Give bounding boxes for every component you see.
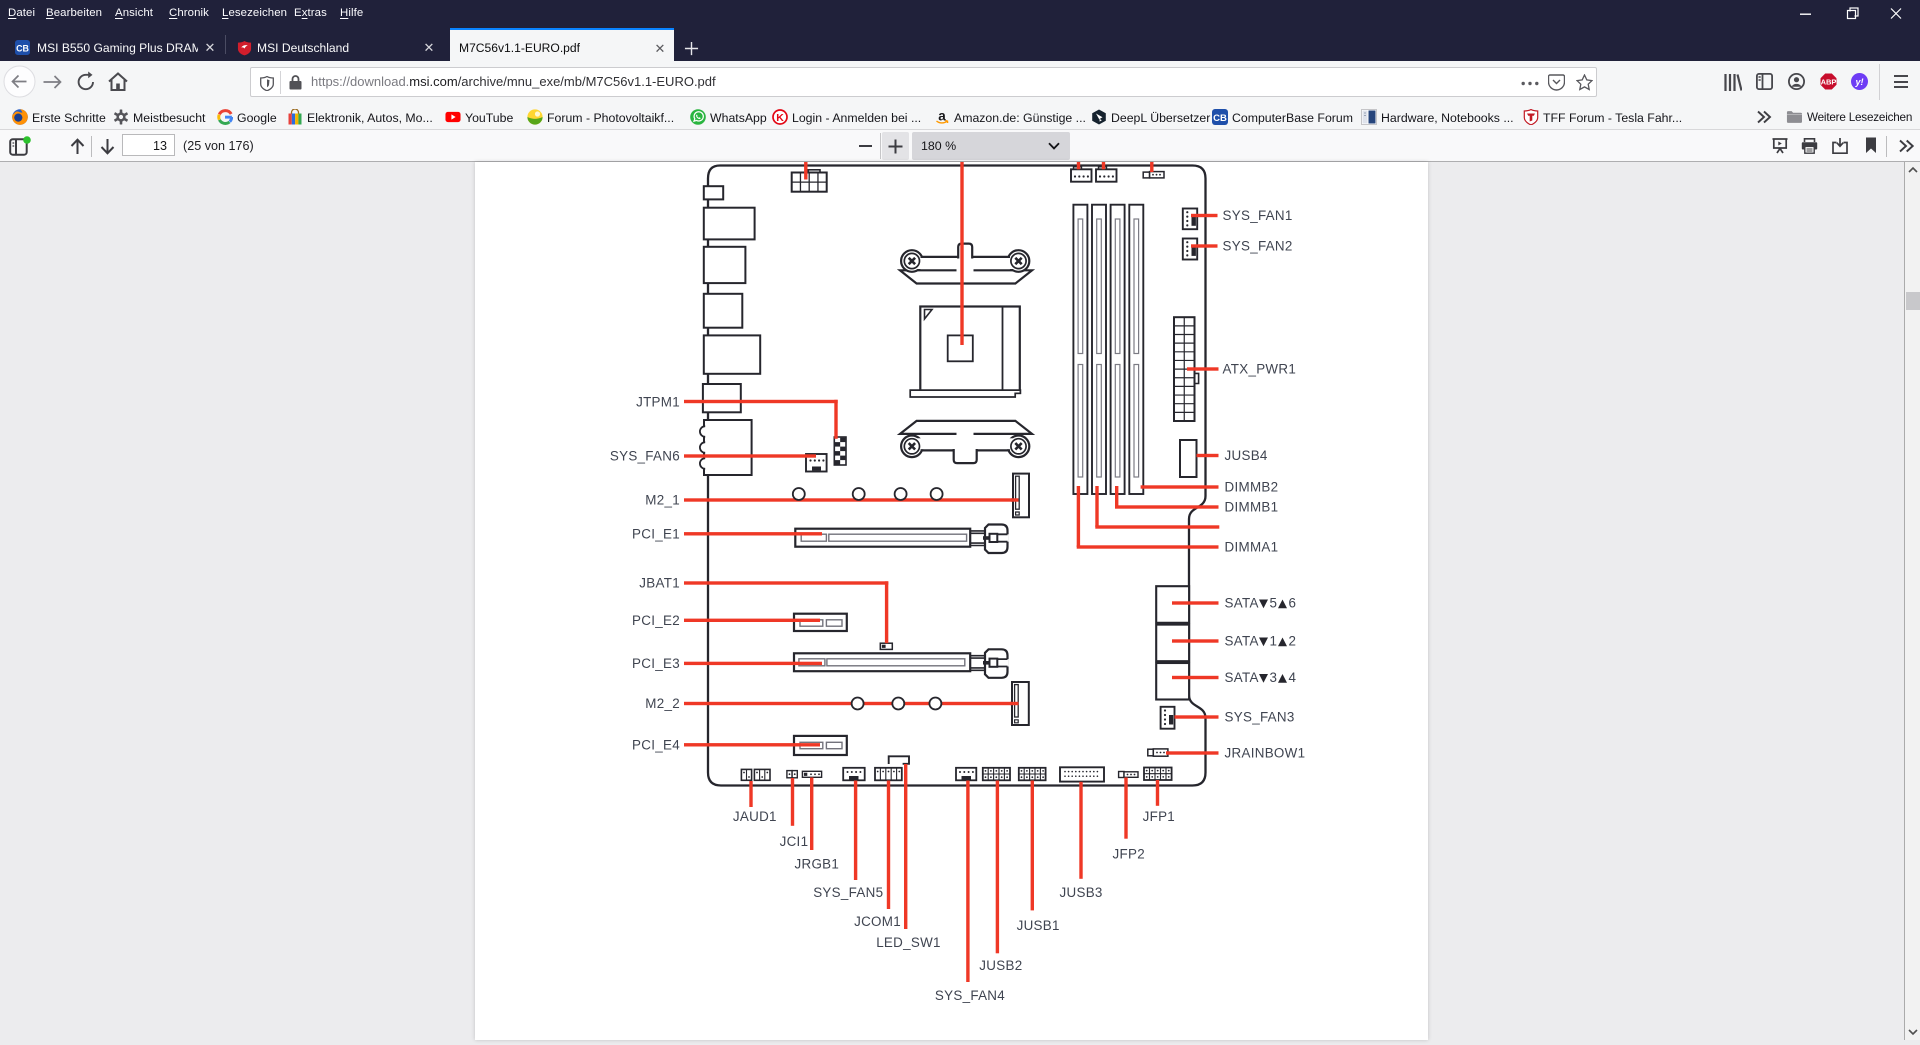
svg-text:2: 2	[1289, 634, 1297, 649]
svg-text:DIMMB1: DIMMB1	[1225, 500, 1279, 515]
svg-text:JUSB3: JUSB3	[1060, 885, 1103, 900]
svg-text:SYS_FAN4: SYS_FAN4	[935, 988, 1005, 1003]
svg-text:JCI1: JCI1	[780, 834, 809, 849]
svg-text:PCI_E4: PCI_E4	[632, 738, 680, 753]
svg-text:JRGB1: JRGB1	[795, 857, 840, 872]
svg-text:JTPM1: JTPM1	[636, 394, 680, 409]
svg-text:a: a	[938, 109, 946, 124]
svg-text:ATX_PWR1: ATX_PWR1	[1223, 362, 1297, 377]
svg-text:JBAT1: JBAT1	[639, 576, 680, 591]
svg-text:JUSB4: JUSB4	[1225, 448, 1268, 463]
svg-text:3: 3	[1270, 670, 1278, 685]
svg-text:JFP1: JFP1	[1143, 809, 1175, 824]
svg-text:JFP2: JFP2	[1113, 847, 1145, 862]
svg-text:SATA: SATA	[1225, 596, 1259, 611]
svg-text:SYS_FAN1: SYS_FAN1	[1223, 208, 1293, 223]
svg-text:1: 1	[1270, 634, 1278, 649]
svg-text:4: 4	[1289, 670, 1297, 685]
svg-text:JAUD1: JAUD1	[733, 809, 777, 824]
svg-text:JCOM1: JCOM1	[854, 914, 901, 929]
svg-text:ABP: ABP	[1821, 78, 1837, 87]
svg-text:M2_1: M2_1	[645, 493, 680, 508]
svg-text:JRAINBOW1: JRAINBOW1	[1225, 746, 1306, 761]
svg-text:CB: CB	[16, 43, 29, 53]
svg-text:SATA: SATA	[1225, 634, 1259, 649]
svg-text:PCI_E2: PCI_E2	[632, 613, 680, 628]
svg-text:SYS_FAN5: SYS_FAN5	[813, 885, 883, 900]
svg-text:PCI_E3: PCI_E3	[632, 656, 680, 671]
svg-text:SATA: SATA	[1225, 670, 1259, 685]
svg-text:DIMMA1: DIMMA1	[1225, 540, 1279, 555]
svg-text:JUSB1: JUSB1	[1017, 918, 1060, 933]
svg-text:JUSB2: JUSB2	[979, 958, 1022, 973]
svg-text:M2_2: M2_2	[645, 696, 680, 711]
svg-text:SYS_FAN6: SYS_FAN6	[610, 449, 680, 464]
svg-text:y!: y!	[1854, 77, 1863, 87]
svg-text:6: 6	[1289, 596, 1297, 611]
svg-text:SYS_FAN2: SYS_FAN2	[1223, 239, 1293, 254]
svg-text:LED_SW1: LED_SW1	[876, 935, 941, 950]
svg-text:DIMMB2: DIMMB2	[1225, 480, 1279, 495]
svg-text:PCI_E1: PCI_E1	[632, 527, 680, 542]
svg-text:SYS_FAN3: SYS_FAN3	[1225, 710, 1295, 725]
svg-text:K: K	[776, 112, 784, 124]
svg-text:5: 5	[1270, 596, 1278, 611]
svg-text:CB: CB	[1213, 113, 1227, 124]
